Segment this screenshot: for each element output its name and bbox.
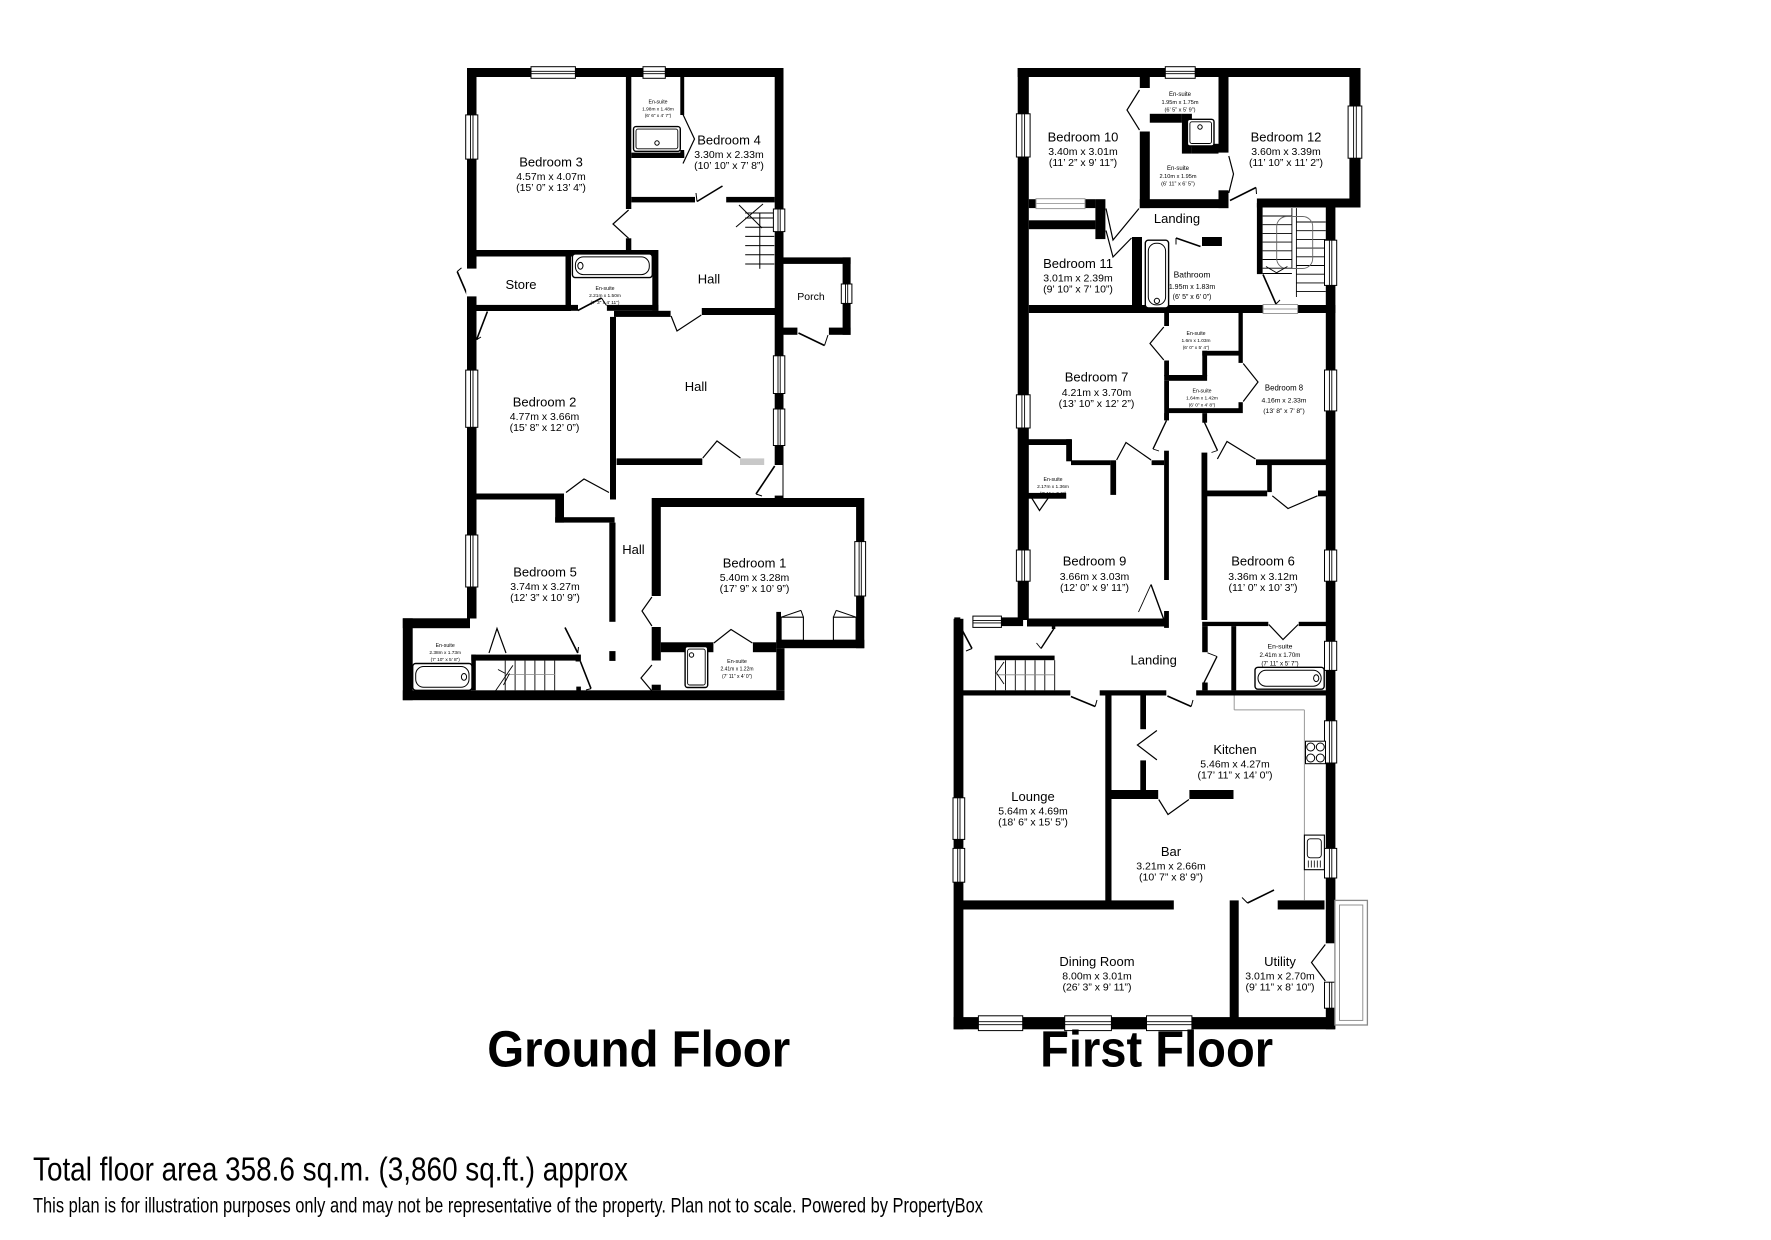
- svg-text:2.17m x 1.36m: 2.17m x 1.36m: [1037, 484, 1069, 490]
- svg-text:Landing: Landing: [1131, 653, 1177, 668]
- svg-text:Hall: Hall: [622, 542, 645, 557]
- svg-text:Bedroom 12: Bedroom 12: [1251, 130, 1322, 145]
- svg-text:(13’ 10” x 12’ 2”): (13’ 10” x 12’ 2”): [1059, 398, 1135, 410]
- svg-text:(13’ 8” x 7’ 8”): (13’ 8” x 7’ 8”): [1263, 408, 1304, 415]
- svg-text:Bedroom 8: Bedroom 8: [1265, 384, 1303, 393]
- svg-text:(17’ 11” x 14’ 0”): (17’ 11” x 14’ 0”): [1198, 770, 1273, 782]
- svg-text:This plan is for illustration: This plan is for illustration purposes o…: [33, 1195, 983, 1218]
- svg-text:En-suite: En-suite: [1192, 389, 1211, 395]
- svg-text:Bedroom 11: Bedroom 11: [1043, 256, 1113, 271]
- svg-text:(12’ 0” x 9’ 11”): (12’ 0” x 9’ 11”): [1060, 582, 1129, 594]
- svg-text:En-suite: En-suite: [1169, 92, 1192, 98]
- svg-text:2.38m x 1.73m: 2.38m x 1.73m: [429, 650, 461, 656]
- svg-text:(15’ 0” x 13’ 4”): (15’ 0” x 13’ 4”): [516, 182, 586, 194]
- svg-text:En-suite: En-suite: [1268, 644, 1293, 651]
- svg-text:1.64m x 1.42m: 1.64m x 1.42m: [1186, 396, 1218, 402]
- svg-text:Bedroom 5: Bedroom 5: [513, 565, 577, 580]
- svg-text:1.6m x 1.03m: 1.6m x 1.03m: [1181, 338, 1210, 344]
- svg-text:4.16m x 2.33m: 4.16m x 2.33m: [1262, 398, 1307, 405]
- svg-text:1.95m x 1.83m: 1.95m x 1.83m: [1169, 284, 1215, 291]
- svg-text:(18’ 6” x 15’ 5”): (18’ 6” x 15’ 5”): [998, 817, 1068, 829]
- svg-text:(7’ 11” x 5’ 7”): (7’ 11” x 5’ 7”): [1261, 661, 1298, 668]
- svg-text:(17’ 9” x 10’ 9”): (17’ 9” x 10’ 9”): [720, 583, 790, 595]
- svg-text:(10’ 7” x 8’ 9”): (10’ 7” x 8’ 9”): [1139, 872, 1203, 884]
- svg-text:(26’ 3” x 9’ 11”): (26’ 3” x 9’ 11”): [1062, 982, 1131, 994]
- svg-text:Bathroom: Bathroom: [1174, 270, 1211, 280]
- svg-text:(9’ 11” x 8’ 10”): (9’ 11” x 8’ 10”): [1245, 982, 1314, 994]
- svg-text:Bedroom 2: Bedroom 2: [513, 395, 577, 410]
- svg-text:(6’ 6” x 4’ 7”): (6’ 6” x 4’ 7”): [645, 113, 672, 119]
- svg-text:Landing: Landing: [1154, 211, 1200, 226]
- svg-text:Hall: Hall: [685, 379, 708, 394]
- svg-text:En-suite: En-suite: [595, 286, 614, 292]
- svg-text:(6’ 0” x 5’ 4”): (6’ 0” x 5’ 4”): [1183, 345, 1210, 351]
- svg-text:(7’ 3” x 4’ 11”): (7’ 3” x 4’ 11”): [591, 300, 620, 306]
- svg-text:(6’ 0” x 4’ 8”): (6’ 0” x 4’ 8”): [1189, 403, 1216, 409]
- svg-text:Porch: Porch: [797, 291, 825, 303]
- svg-text:1.98m x 1.48m: 1.98m x 1.48m: [642, 107, 674, 113]
- svg-text:(7’ 11” x 4’ 0”): (7’ 11” x 4’ 0”): [722, 674, 752, 680]
- svg-text:2.41m x 1.70m: 2.41m x 1.70m: [1260, 652, 1301, 659]
- svg-text:(6’ 11” x 6’ 5”): (6’ 11” x 6’ 5”): [1161, 182, 1195, 188]
- svg-text:2.41m x 1.22m: 2.41m x 1.22m: [720, 667, 753, 673]
- svg-text:En-suite: En-suite: [727, 659, 747, 665]
- svg-text:(6’ 5” x 5’ 9”): (6’ 5” x 5’ 9”): [1165, 108, 1196, 114]
- svg-text:(12’ 3” x 10’ 9”): (12’ 3” x 10’ 9”): [510, 592, 580, 604]
- svg-text:Dining Room: Dining Room: [1059, 954, 1134, 969]
- svg-text:En-suite: En-suite: [1186, 331, 1205, 337]
- svg-text:(15’ 8” x 12’ 0”): (15’ 8” x 12’ 0”): [510, 422, 580, 434]
- svg-text:2.10m x 1.95m: 2.10m x 1.95m: [1160, 174, 1197, 180]
- svg-text:Bedroom 9: Bedroom 9: [1063, 554, 1127, 569]
- svg-text:En-suite: En-suite: [1043, 477, 1062, 483]
- svg-text:Bedroom 4: Bedroom 4: [697, 133, 761, 148]
- svg-text:(11’ 2” x 9’ 11”): (11’ 2” x 9’ 11”): [1049, 157, 1117, 169]
- svg-text:Total floor area 358.6 sq.m. (: Total floor area 358.6 sq.m. (3,860 sq.f…: [33, 1150, 628, 1187]
- svg-text:Store: Store: [505, 277, 536, 292]
- svg-text:2.21m x 1.50m: 2.21m x 1.50m: [589, 293, 621, 299]
- svg-text:En-suite: En-suite: [648, 100, 667, 106]
- svg-text:Utility: Utility: [1264, 954, 1296, 969]
- svg-text:1.95m x 1.75m: 1.95m x 1.75m: [1162, 100, 1199, 106]
- svg-text:Bedroom 7: Bedroom 7: [1065, 370, 1129, 385]
- svg-text:(11’ 10” x 11’ 2”): (11’ 10” x 11’ 2”): [1249, 157, 1323, 169]
- svg-text:(7’ 10” x 5’ 8”): (7’ 10” x 5’ 8”): [431, 657, 461, 663]
- svg-text:Ground Floor: Ground Floor: [487, 1021, 790, 1078]
- svg-text:En-suite: En-suite: [1167, 166, 1190, 172]
- svg-text:Bedroom 10: Bedroom 10: [1048, 130, 1119, 145]
- svg-text:Bedroom 6: Bedroom 6: [1231, 554, 1295, 569]
- svg-text:(11’ 0” x 10’ 3”): (11’ 0” x 10’ 3”): [1228, 582, 1297, 594]
- svg-text:Bar: Bar: [1161, 844, 1182, 859]
- svg-text:(10’ 10” x 7’ 8”): (10’ 10” x 7’ 8”): [694, 160, 764, 172]
- svg-text:Lounge: Lounge: [1011, 789, 1054, 804]
- svg-text:Bedroom 1: Bedroom 1: [723, 556, 787, 571]
- svg-text:Hall: Hall: [698, 272, 721, 287]
- svg-text:Kitchen: Kitchen: [1213, 742, 1256, 757]
- svg-text:(7’ 1” x 4’ 6”): (7’ 1” x 4’ 6”): [1040, 491, 1067, 497]
- svg-text:En-suite: En-suite: [436, 643, 455, 649]
- svg-text:(6’ 5” x 6’ 0”): (6’ 5” x 6’ 0”): [1173, 294, 1212, 301]
- svg-text:Bedroom 3: Bedroom 3: [519, 155, 583, 170]
- svg-text:(9’ 10” x 7’ 10”): (9’ 10” x 7’ 10”): [1043, 284, 1113, 296]
- svg-text:First Floor: First Floor: [1040, 1021, 1273, 1078]
